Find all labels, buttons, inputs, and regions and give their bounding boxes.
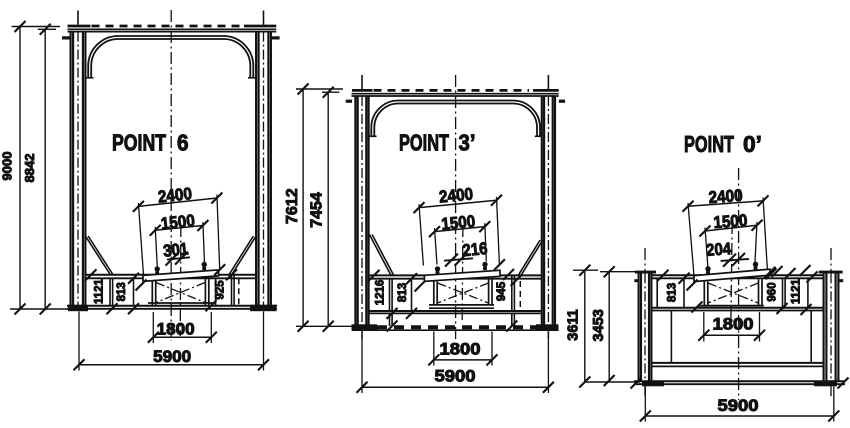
svg-text:1121: 1121: [94, 278, 106, 304]
svg-text:1500: 1500: [160, 211, 196, 233]
svg-text:204: 204: [705, 239, 732, 260]
svg-text:813: 813: [116, 282, 128, 301]
svg-text:7612: 7612: [284, 188, 301, 224]
svg-text:6: 6: [177, 129, 189, 155]
svg-text:216: 216: [462, 239, 489, 260]
svg-text:2400: 2400: [438, 184, 474, 206]
svg-text:POINT: POINT: [684, 131, 734, 157]
svg-text:925: 925: [215, 280, 227, 300]
svg-text:POINT: POINT: [112, 129, 166, 155]
svg-text:1121: 1121: [791, 278, 803, 304]
svg-text:1500: 1500: [713, 211, 748, 232]
svg-text:960: 960: [767, 282, 779, 301]
svg-text:1800: 1800: [440, 340, 481, 358]
svg-text:813: 813: [666, 283, 678, 302]
svg-text:5900: 5900: [435, 367, 476, 385]
svg-text:5900: 5900: [153, 348, 191, 366]
svg-text:POINT: POINT: [399, 129, 449, 155]
svg-text:813: 813: [397, 283, 409, 302]
svg-text:1800: 1800: [713, 316, 754, 334]
svg-text:945: 945: [496, 281, 508, 301]
svg-text:2400: 2400: [708, 186, 743, 207]
svg-text:3453: 3453: [591, 309, 607, 341]
svg-text:3611: 3611: [566, 309, 582, 340]
svg-text:1216: 1216: [375, 280, 387, 306]
svg-text:8842: 8842: [22, 154, 37, 183]
svg-text:2400: 2400: [157, 184, 193, 206]
svg-text:1500: 1500: [440, 212, 476, 234]
svg-text:3’: 3’: [459, 129, 476, 155]
svg-text:0’: 0’: [743, 131, 762, 157]
svg-text:5900: 5900: [718, 397, 759, 415]
svg-text:9000: 9000: [0, 152, 15, 181]
svg-text:7454: 7454: [309, 192, 326, 228]
svg-text:1800: 1800: [157, 321, 195, 339]
